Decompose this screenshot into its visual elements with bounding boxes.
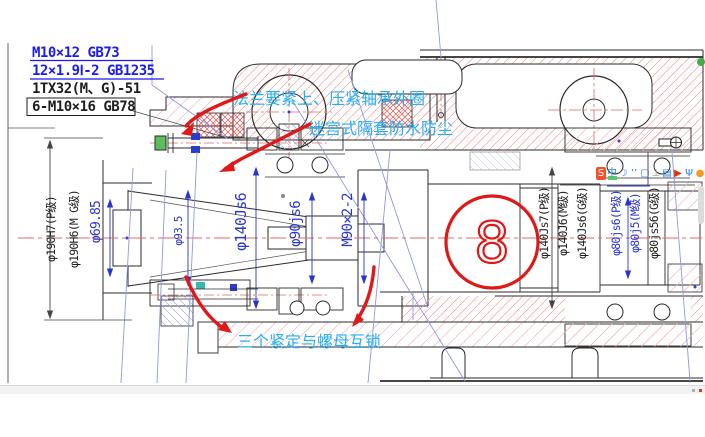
ime-toolbar[interactable]: S 中 ☽ ’’ ▢ ⊥ ▤ ▶ Ψ ● xyxy=(596,166,705,181)
bearing-ball xyxy=(290,301,304,315)
annotation-labyrinth: 迷宫式隔套防水防尘 xyxy=(309,119,453,138)
sogou-logo-icon[interactable]: S xyxy=(596,167,606,180)
dim-80js6-p: φ80js6(P级) xyxy=(609,190,623,256)
dim-93-5: φ93.5 xyxy=(172,216,185,245)
softkeyboard-icon[interactable]: ▢ xyxy=(640,167,650,180)
scroll-marker-icon xyxy=(692,389,695,392)
vertical-scrollbar-thumb[interactable] xyxy=(698,186,704,224)
green-marker-dot xyxy=(697,58,705,66)
punctuation-icon[interactable]: ’’ xyxy=(629,167,639,180)
annotation-locking: 三个紧定与螺母互锁 xyxy=(237,332,381,351)
dim-m90: M90×2-2 xyxy=(340,193,356,247)
horizontal-scrollbar[interactable] xyxy=(0,385,705,394)
fullwidth-icon[interactable]: ☽ xyxy=(618,167,628,180)
note-line-4: 6-M10×16 GB78 xyxy=(32,99,135,115)
dim-190h7: φ190H7(P级) xyxy=(44,196,58,262)
dim-69-85: φ69.85 xyxy=(89,201,104,243)
dim-80js56-g: φ80js56(G级) xyxy=(647,187,661,259)
bearing-ball xyxy=(316,301,330,315)
dim-90js6: φ90js6 xyxy=(288,201,304,247)
dim-140j6-m: φ140J6(M级) xyxy=(556,190,570,256)
note-line-1: M10×12 GB73 xyxy=(32,45,119,61)
scroll-marker-red-icon xyxy=(699,389,702,392)
note-line-2: 12×1.9Ⅰ-2 GB1235 xyxy=(32,63,155,79)
dim-80j5-m: φ80j5(M级) xyxy=(628,193,642,253)
note-line-3: 1TX32(M、G)-51 xyxy=(32,81,141,97)
bolt-icon xyxy=(659,137,682,148)
cad-canvas[interactable]: M10×12 GB73 12×1.9Ⅰ-2 GB1235 1TX32(M、G)-… xyxy=(0,0,705,437)
chinese-mode-icon[interactable]: 中 xyxy=(607,167,617,180)
clipboard-icon[interactable]: ▤ xyxy=(662,167,672,180)
set-screw-head xyxy=(155,136,166,150)
dim-140js6: φ140Js6 xyxy=(232,192,250,250)
red-arrow-locking-right xyxy=(356,267,374,321)
engineering-drawing: M10×12 GB73 12×1.9Ⅰ-2 GB1235 1TX32(M、G)-… xyxy=(0,0,705,437)
bearing-ball xyxy=(277,157,293,173)
annotation-flange: 法兰要紧上、压紧轴承外圈 xyxy=(233,89,425,108)
bearing-ball xyxy=(312,157,328,173)
skin-icon[interactable]: ▶ xyxy=(673,167,683,180)
red-number-8: 8 xyxy=(474,211,510,276)
handwriting-icon[interactable]: ⊥ xyxy=(651,167,661,180)
toolbox-icon[interactable]: Ψ xyxy=(684,167,694,180)
settings-icon[interactable]: ● xyxy=(695,167,705,180)
dim-140js6-g: φ140Js6(G级) xyxy=(575,187,589,259)
dim-190h6: φ190H6(M G级) xyxy=(67,190,81,268)
